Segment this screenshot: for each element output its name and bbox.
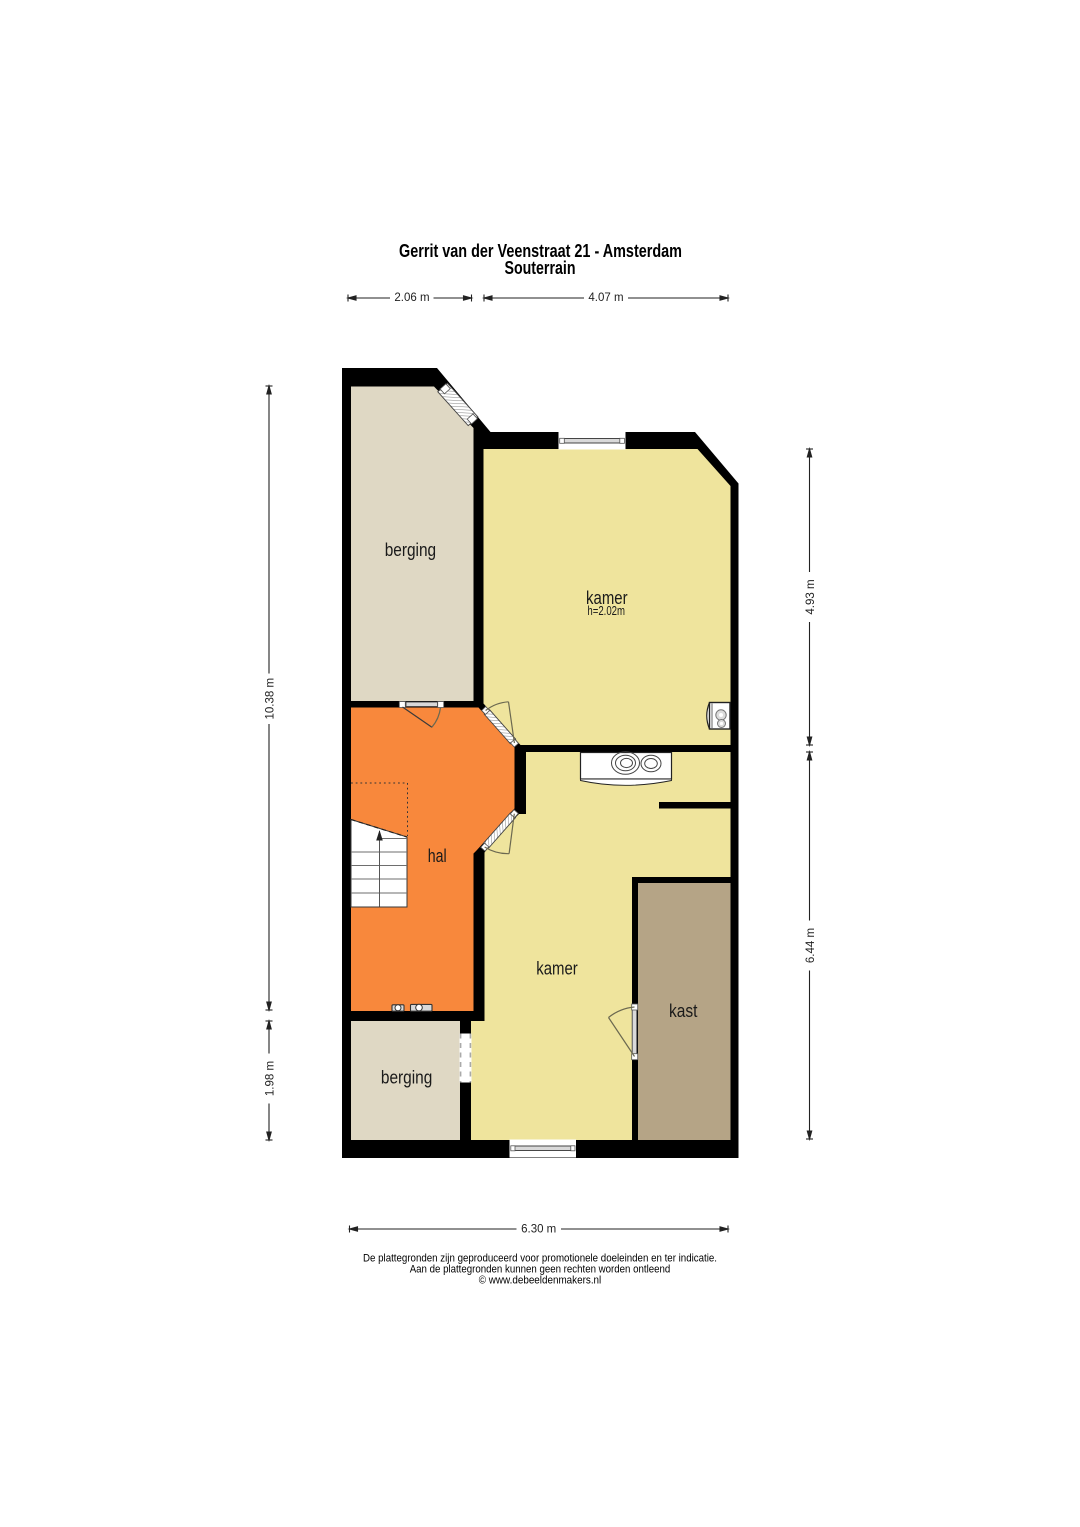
svg-text:6.44 m: 6.44 m bbox=[805, 928, 817, 963]
svg-text:4.93 m: 4.93 m bbox=[805, 579, 817, 614]
svg-text:hal: hal bbox=[428, 845, 447, 866]
svg-text:1.98 m: 1.98 m bbox=[265, 1061, 277, 1096]
svg-text:kast: kast bbox=[669, 1000, 698, 1021]
svg-text:4.07 m: 4.07 m bbox=[588, 292, 623, 304]
svg-text:2.06 m: 2.06 m bbox=[394, 292, 429, 304]
svg-text:Souterrain: Souterrain bbox=[505, 257, 576, 278]
svg-text:10.38 m: 10.38 m bbox=[265, 678, 277, 720]
svg-text:© www.debeeldenmakers.nl: © www.debeeldenmakers.nl bbox=[479, 1275, 602, 1287]
svg-text:berging: berging bbox=[385, 539, 436, 560]
svg-text:kamer: kamer bbox=[536, 958, 578, 979]
svg-text:berging: berging bbox=[381, 1067, 432, 1088]
svg-text:h=2.02m: h=2.02m bbox=[587, 603, 625, 618]
svg-text:6.30 m: 6.30 m bbox=[521, 1224, 556, 1236]
